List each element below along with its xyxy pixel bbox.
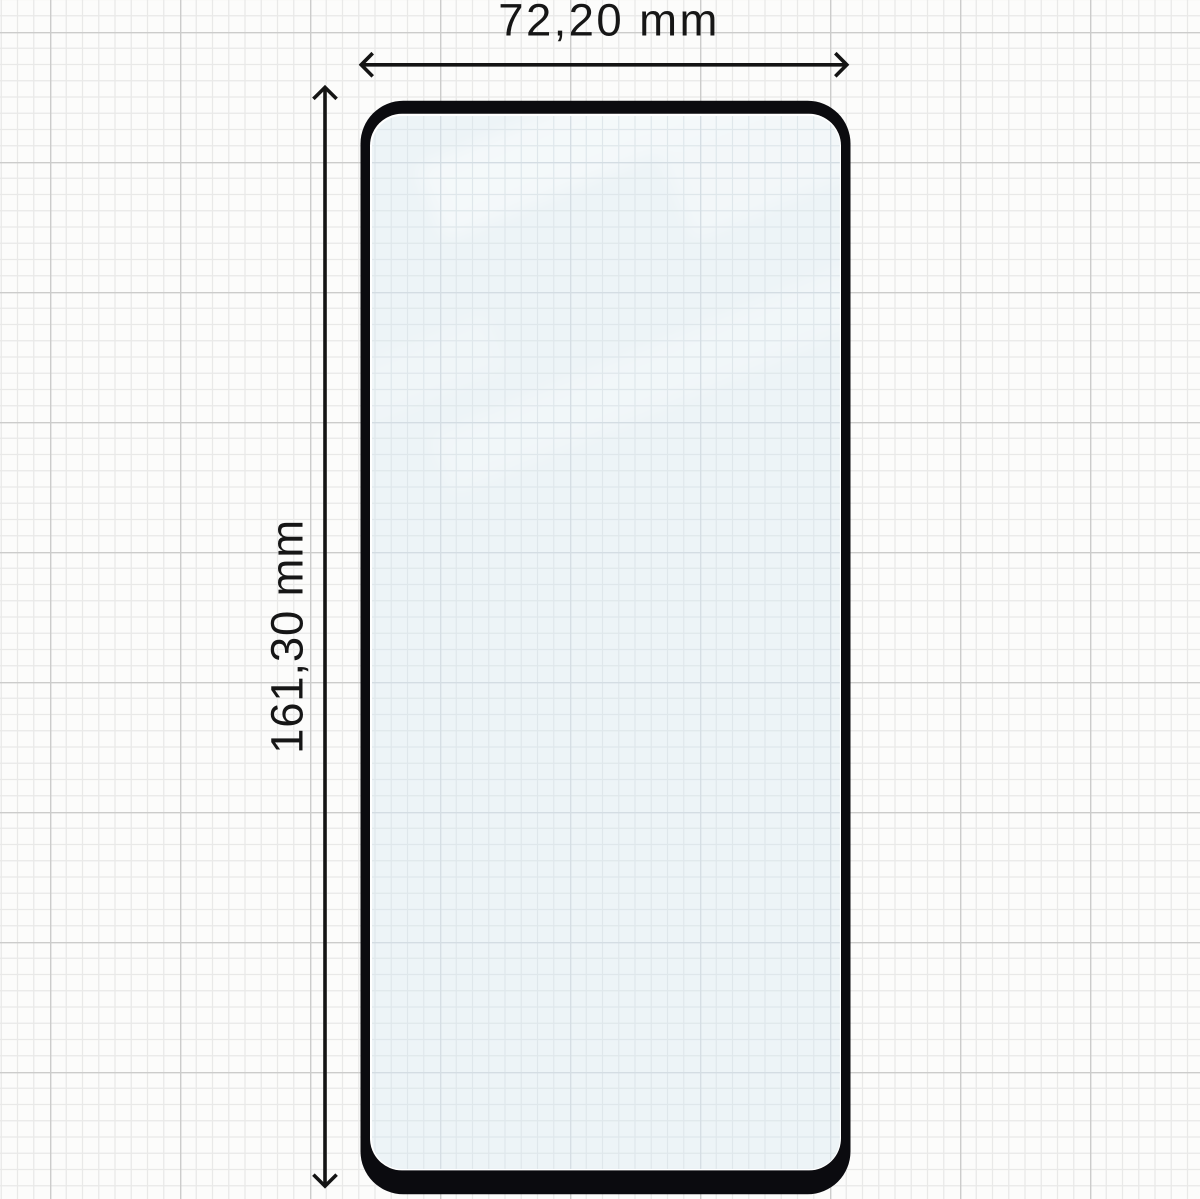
svg-text:161,30 mm: 161,30 mm — [262, 519, 313, 754]
svg-text:72,20 mm: 72,20 mm — [498, 0, 720, 46]
